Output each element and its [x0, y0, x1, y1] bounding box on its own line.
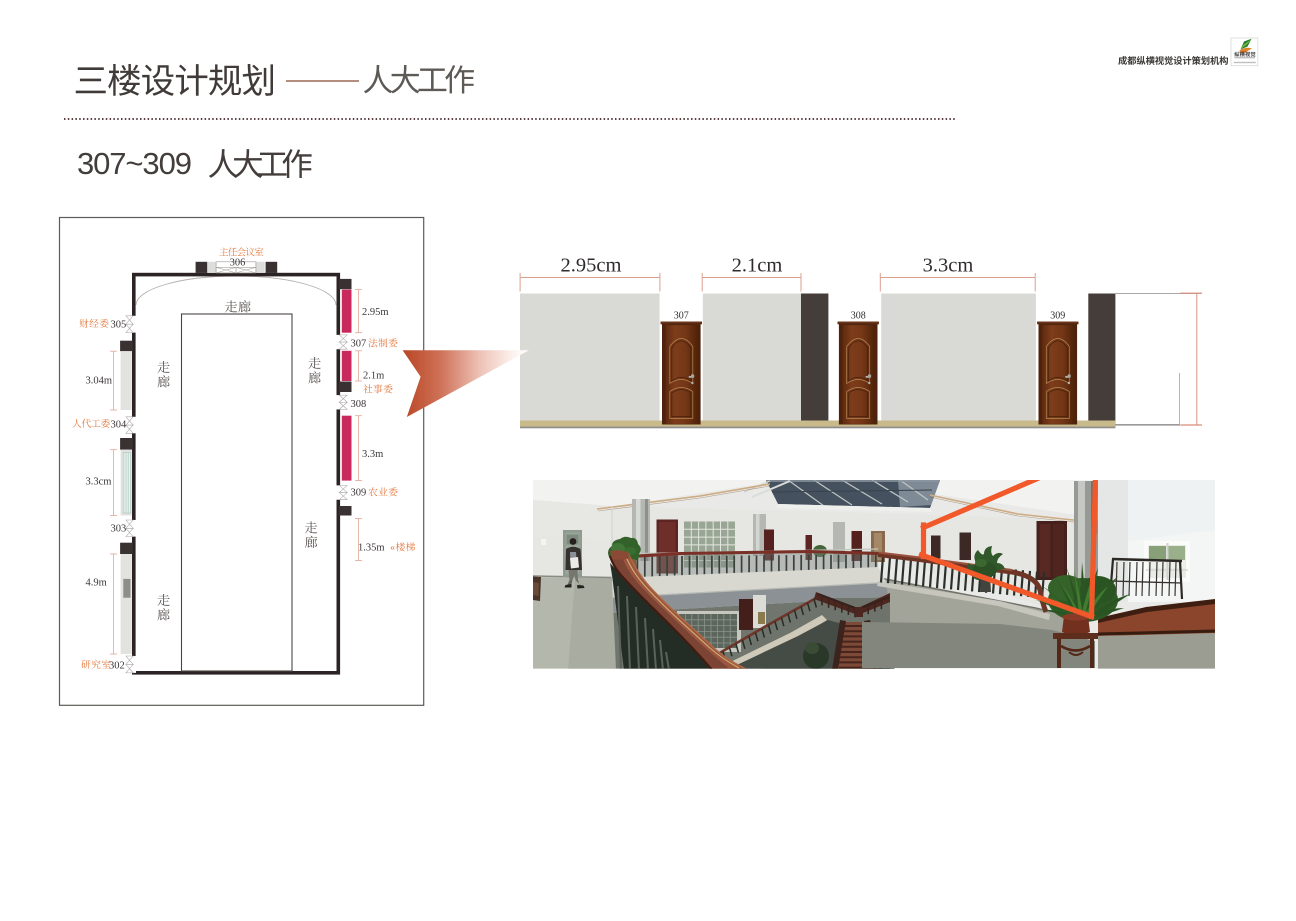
svg-text:2.95cm: 2.95cm: [561, 255, 622, 277]
svg-text:4.9m: 4.9m: [86, 578, 107, 589]
svg-text:308: 308: [851, 311, 866, 322]
svg-text:303: 303: [111, 524, 127, 535]
svg-text:2.95m: 2.95m: [362, 307, 389, 318]
svg-text:3.04m: 3.04m: [86, 376, 113, 387]
svg-text:306: 306: [230, 258, 246, 269]
svg-text:304: 304: [111, 420, 128, 431]
svg-text:3.3cm: 3.3cm: [86, 477, 112, 488]
svg-text:3.3m: 3.3m: [362, 449, 383, 460]
svg-text:307~309: 307~309: [77, 146, 191, 181]
svg-text:«: «: [390, 543, 395, 554]
svg-text:307: 307: [674, 311, 689, 322]
svg-text:305: 305: [111, 320, 127, 331]
svg-text:309: 309: [1050, 311, 1065, 322]
svg-text:1.35m: 1.35m: [358, 543, 385, 554]
svg-text:302: 302: [109, 661, 125, 672]
svg-text:309: 309: [351, 488, 367, 499]
svg-text:307: 307: [351, 339, 367, 350]
svg-text:3.3cm: 3.3cm: [923, 255, 974, 277]
svg-text:308: 308: [351, 399, 367, 410]
svg-text:2.1cm: 2.1cm: [732, 255, 783, 277]
svg-text:2.1m: 2.1m: [363, 371, 384, 382]
